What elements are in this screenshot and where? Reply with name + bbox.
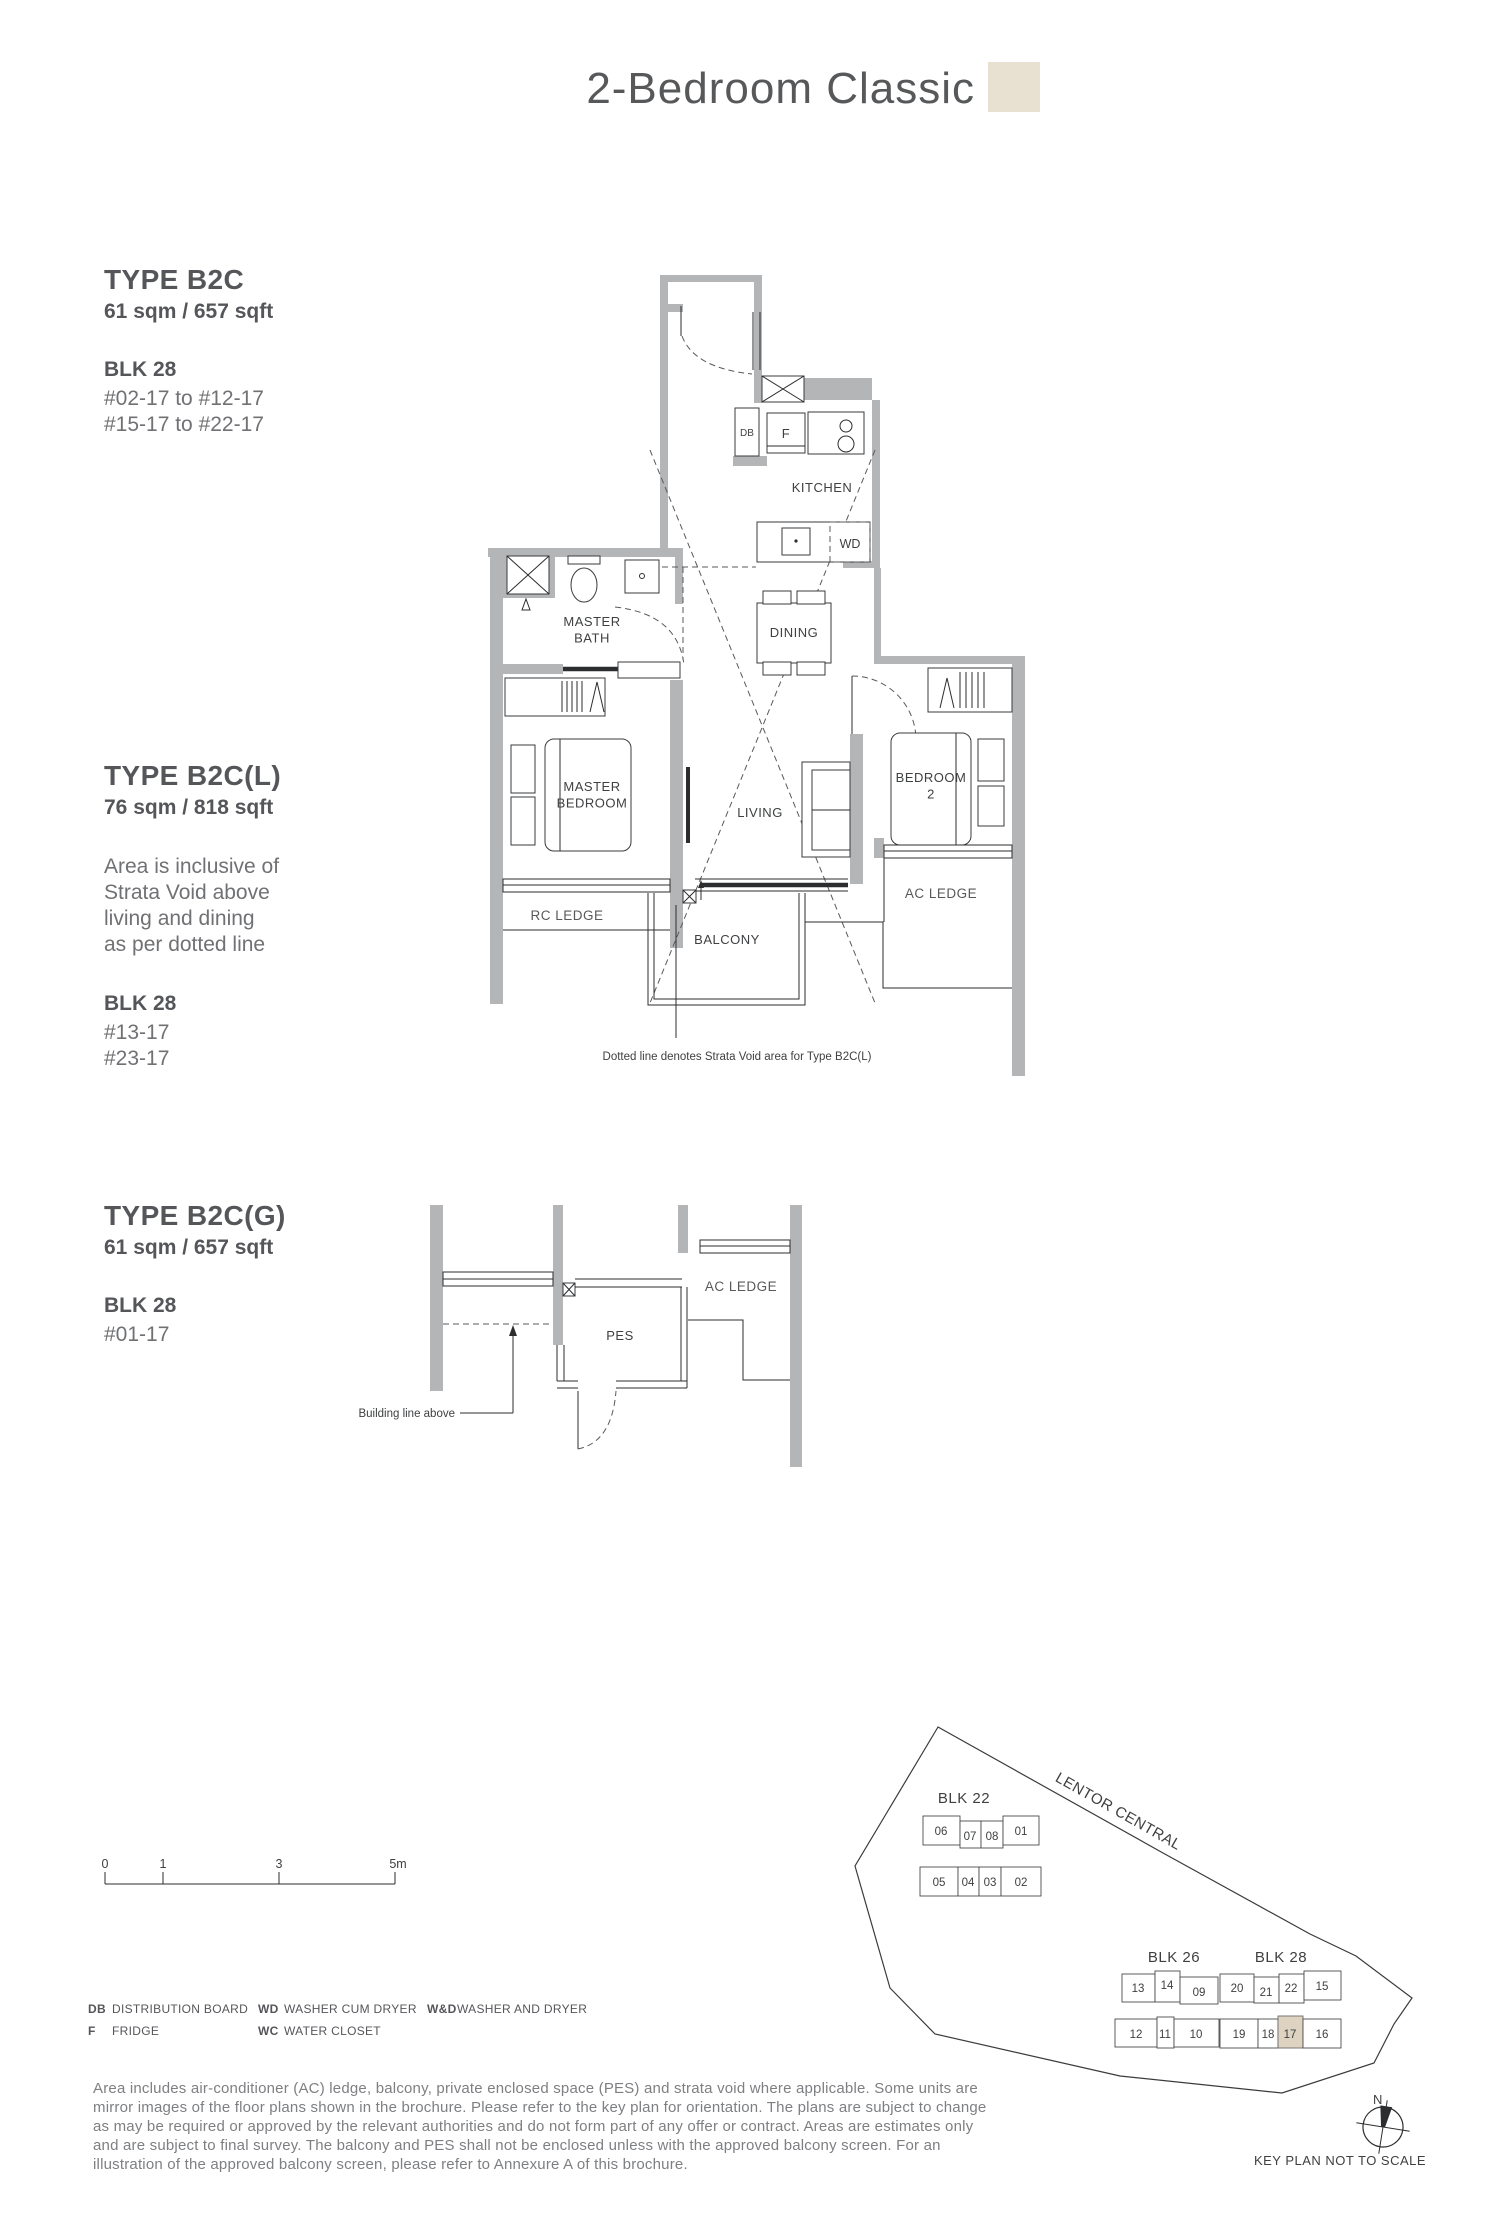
unit-05: 05 (933, 1877, 946, 1889)
type-b2cl-units-1: #13-17 (104, 1020, 281, 1046)
unit-06: 06 (935, 1826, 948, 1838)
living-label: LIVING (737, 805, 783, 820)
brochure-page: 2-Bedroom Classic TYPE B2C 61 sqm / 657 … (0, 0, 1499, 2233)
north-label: N (1373, 2092, 1383, 2107)
unit-13: 13 (1132, 1983, 1145, 1995)
unit-19: 19 (1233, 2029, 1246, 2041)
master-bath-label: MASTERBATH (563, 614, 620, 645)
road-label: LENTOR CENTRAL (1052, 1769, 1184, 1854)
entry-door (681, 306, 760, 374)
type-b2cl-name: TYPE B2C(L) (104, 760, 281, 792)
type-b2c-info: TYPE B2C 61 sqm / 657 sqft BLK 28 #02-17… (104, 264, 273, 438)
kitchen-label: KITCHEN (792, 480, 853, 495)
legend-col-2: WD WASHER CUM DRYER WC WATER CLOSET (258, 1998, 417, 2042)
type-b2cg-area: 61 sqm / 657 sqft (104, 1236, 286, 1260)
blk26-units: 13 14 09 12 11 10 (1115, 1971, 1219, 2048)
unit-11: 11 (1159, 2029, 1171, 2041)
master-bedroom-label: MASTERBEDROOM (557, 779, 628, 810)
legend-col-3: W&D WASHER AND DRYER (427, 1998, 587, 2020)
type-b2cl-units-2: #23-17 (104, 1046, 281, 1072)
legend-abbr-wandd: W&D (427, 1998, 457, 2020)
unit-17: 17 (1284, 2029, 1297, 2041)
scale-tick-1: 1 (160, 1857, 167, 1871)
type-b2c-blk: BLK 28 (104, 358, 273, 382)
legend-abbr-wd: WD (258, 1998, 284, 2020)
fridge-label: F (782, 426, 790, 441)
unit-15: 15 (1316, 1981, 1329, 1993)
keyplan-caption: KEY PLAN NOT TO SCALE (1254, 2153, 1426, 2168)
north-compass-icon: N (1352, 2092, 1414, 2158)
type-b2cl-note-2: Strata Void above (104, 880, 281, 906)
building-line-label: Building line above (358, 1408, 455, 1420)
unit-03: 03 (984, 1877, 997, 1889)
scale-tick-5m: 5m (389, 1857, 406, 1871)
unit-08: 08 (986, 1831, 999, 1843)
blk26-label: BLK 26 (1148, 1949, 1200, 1966)
unit-01: 01 (1015, 1826, 1028, 1838)
legend-label-wc: WATER CLOSET (284, 2020, 381, 2042)
type-b2c-units-2: #15-17 to #22-17 (104, 412, 273, 438)
blk22-label: BLK 22 (938, 1790, 990, 1807)
unit-02: 02 (1015, 1877, 1028, 1889)
type-b2cl-note-3: living and dining (104, 906, 281, 932)
unit-04: 04 (962, 1877, 975, 1889)
legend-abbr-wc: WC (258, 2020, 284, 2042)
type-b2cl-area: 76 sqm / 818 sqft (104, 796, 281, 820)
accent-swatch (988, 62, 1040, 112)
dining-label: DINING (770, 625, 819, 640)
type-b2c-units-1: #02-17 to #12-17 (104, 386, 273, 412)
type-b2cl-blk: BLK 28 (104, 992, 281, 1016)
unit-18: 18 (1262, 2029, 1275, 2041)
type-b2cg-name: TYPE B2C(G) (104, 1200, 286, 1232)
floorplan-b2c: DB F KITCHEN WD DINING MASTERBATH (340, 186, 1040, 1076)
type-b2c-name: TYPE B2C (104, 264, 273, 296)
ac-ledge-label-2: AC LEDGE (705, 1279, 777, 1294)
blk28-label: BLK 28 (1255, 1949, 1307, 1966)
page-title: 2-Bedroom Classic (586, 64, 975, 114)
unit-22: 22 (1285, 1983, 1298, 1995)
type-b2cg-blk: BLK 28 (104, 1294, 286, 1318)
blk22-units: 06 07 08 01 05 04 03 02 (920, 1816, 1041, 1896)
strata-void-note: Dotted line denotes Strata Void area for… (603, 1051, 872, 1063)
legend-label-wd: WASHER CUM DRYER (284, 1998, 417, 2020)
legend-col-1: DB DISTRIBUTION BOARD F FRIDGE (88, 1998, 248, 2042)
ac-ledge-label: AC LEDGE (905, 886, 977, 901)
legend-abbr-db: DB (88, 1998, 112, 2020)
floorplan-b2cg-lines (443, 1240, 790, 1449)
type-b2cl-note-4: as per dotted line (104, 932, 281, 958)
master-bedroom-furniture (505, 678, 631, 851)
legend-label-wandd: WASHER AND DRYER (457, 1998, 587, 2020)
unit-10: 10 (1190, 2029, 1203, 2041)
unit-09: 09 (1193, 1987, 1206, 1999)
legend-label-db: DISTRIBUTION BOARD (112, 1998, 248, 2020)
blk28-units: 20 21 22 15 19 18 17 16 (1220, 1971, 1341, 2048)
legend-label-f: FRIDGE (112, 2020, 159, 2042)
unit-21: 21 (1260, 1987, 1273, 1999)
unit-16: 16 (1316, 2029, 1329, 2041)
type-b2cg-units-1: #01-17 (104, 1322, 286, 1348)
key-plan: LENTOR CENTRAL BLK 22 06 07 08 01 05 04 … (845, 1700, 1499, 2200)
balcony-label: BALCONY (694, 932, 760, 947)
ac-ledge-outline (805, 858, 1012, 988)
wd-label: WD (840, 537, 861, 551)
floorplan-b2cg: PES AC LEDGE Building line above (300, 1200, 820, 1470)
type-b2cl-info: TYPE B2C(L) 76 sqm / 818 sqft Area is in… (104, 760, 281, 1072)
scale-bar: 0 1 3 5m (95, 1850, 425, 1900)
scale-tick-3: 3 (276, 1857, 283, 1871)
legend-abbr-f: F (88, 2020, 112, 2042)
type-b2cl-note-1: Area is inclusive of (104, 854, 281, 880)
bedroom2-furniture (852, 668, 1012, 845)
db-label: DB (740, 428, 754, 439)
type-b2cg-info: TYPE B2C(G) 61 sqm / 657 sqft BLK 28 #01… (104, 1200, 286, 1348)
rc-ledge-label: RC LEDGE (530, 908, 603, 923)
type-b2c-area: 61 sqm / 657 sqft (104, 300, 273, 324)
scale-tick-0: 0 (102, 1857, 109, 1871)
unit-07: 07 (964, 1831, 977, 1843)
pes-label: PES (606, 1328, 634, 1343)
unit-20: 20 (1231, 1983, 1244, 1995)
unit-14: 14 (1161, 1980, 1174, 1992)
unit-12: 12 (1130, 2029, 1143, 2041)
